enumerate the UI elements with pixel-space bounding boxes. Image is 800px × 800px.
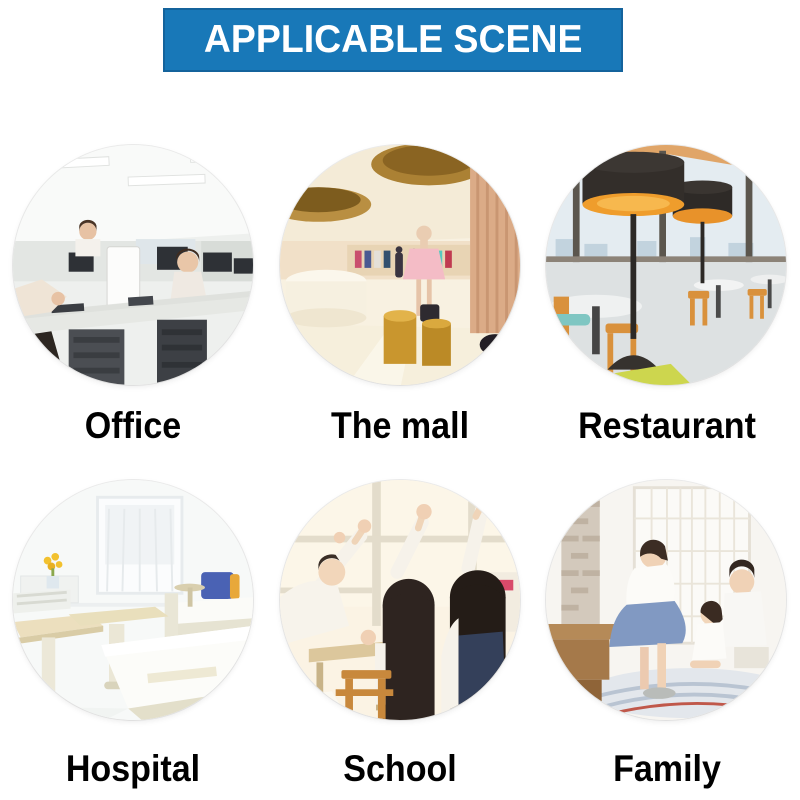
banner-title: APPLICABLE SCENE bbox=[204, 18, 583, 62]
school-scene-illustration bbox=[280, 480, 520, 720]
restaurant-label: Restaurant bbox=[545, 405, 790, 447]
family-scene-illustration bbox=[546, 480, 786, 720]
school-photo bbox=[280, 480, 520, 720]
applicable-scene-graphic: APPLICABLE SCENE bbox=[0, 0, 800, 800]
restaurant-photo bbox=[546, 145, 786, 385]
mall-label: The mall bbox=[278, 405, 523, 447]
office-label: Office bbox=[11, 405, 256, 447]
office-photo bbox=[13, 145, 253, 385]
title-banner: APPLICABLE SCENE bbox=[163, 8, 623, 72]
hospital-label: Hospital bbox=[11, 748, 256, 790]
family-photo bbox=[546, 480, 786, 720]
hospital-scene-illustration bbox=[13, 480, 253, 720]
mall-scene-illustration bbox=[280, 145, 520, 385]
restaurant-scene-illustration bbox=[546, 145, 786, 385]
mall-photo bbox=[280, 145, 520, 385]
family-label: Family bbox=[545, 748, 790, 790]
hospital-photo bbox=[13, 480, 253, 720]
school-label: School bbox=[278, 748, 523, 790]
office-scene-illustration bbox=[13, 145, 253, 385]
